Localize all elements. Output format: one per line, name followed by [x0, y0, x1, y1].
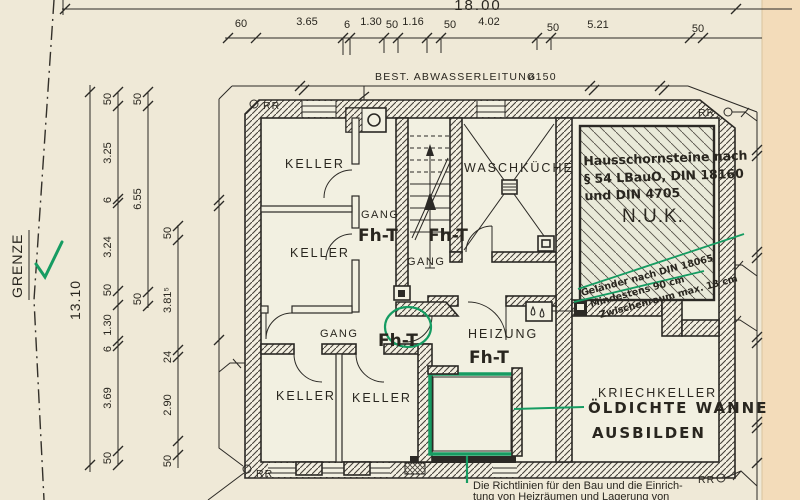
dim-label: 50	[102, 93, 114, 105]
dim-label: 1.30	[360, 16, 381, 28]
dim-label: 50	[692, 23, 704, 35]
dim-label: 5.21	[587, 19, 608, 31]
dim-label: 50	[102, 284, 114, 296]
dim-label: 4.02	[478, 16, 499, 28]
room-label-nuk: N.U.K.	[622, 206, 684, 227]
room-label-gang: GANG	[407, 256, 445, 268]
dim-label: 24	[162, 351, 174, 363]
dim-label: 2.90	[162, 394, 174, 415]
dim-label: 50	[162, 227, 174, 239]
dim-label: 50	[132, 93, 144, 105]
svg-text:AUSBILDEN: AUSBILDEN	[592, 424, 706, 442]
fht-note: Fh-T	[358, 226, 398, 246]
dim-label: 50	[132, 293, 144, 305]
grenze-label: GRENZE	[9, 234, 25, 298]
scan-margin	[762, 0, 800, 500]
room-label-keller: KELLER	[285, 157, 345, 171]
dim-label: 3.24	[102, 236, 114, 257]
floor-drain	[538, 236, 554, 251]
fht-note: Fh-T	[428, 226, 468, 246]
dim-label: 50	[547, 22, 559, 34]
dim-label: 6.55	[132, 188, 144, 209]
rr-label: RR	[698, 107, 715, 119]
pipe-label: BEST. ABWASSERLEITUNG	[375, 71, 536, 83]
dim-label: 1.30	[102, 314, 114, 335]
top-wall-window	[302, 101, 336, 117]
dim-label: 50	[444, 19, 456, 31]
fht-note: Fh-T	[378, 331, 418, 351]
rr-label: RR	[263, 100, 280, 112]
overall-left-dim: 13.10	[67, 280, 83, 320]
rr-label: RR	[256, 468, 273, 480]
pipe-diameter-label: ø150	[528, 71, 557, 83]
room-label-keller: KELLER	[290, 246, 350, 260]
top-wall-window	[477, 101, 505, 117]
room-label-keller: KELLER	[276, 389, 336, 403]
dim-label: 50	[386, 19, 398, 31]
room-label-waschkueche: WASCHKÜCHE	[464, 161, 574, 175]
dim-label: 3.25	[102, 142, 114, 163]
dim-label: 3.81⁵	[162, 287, 174, 313]
blueprint-basement-plan: GRENZE 18.00 60 3.65 6 1.30 50 1.16 50	[0, 0, 800, 500]
dim-label: 6	[102, 197, 114, 203]
overall-top-dim: 18.00	[454, 0, 502, 14]
plan-canvas: GRENZE 18.00 60 3.65 6 1.30 50 1.16 50	[0, 0, 800, 500]
fht-note: Fh-T	[469, 348, 509, 368]
room-label-gang: GANG	[361, 209, 399, 221]
dim-label: 6	[102, 346, 114, 352]
dim-label: 1.16	[402, 16, 423, 28]
dim-label: 3.69	[102, 387, 114, 408]
room-label-keller: KELLER	[352, 391, 412, 405]
room-label-heizung: HEIZUNG	[468, 327, 538, 341]
dim-label: 50	[102, 452, 114, 464]
rr-label: RR	[698, 474, 715, 486]
dim-label: 3.65	[296, 16, 317, 28]
dim-label: 50	[162, 455, 174, 467]
room-label-gang: GANG	[320, 328, 358, 340]
svg-text:ÖLDICHTE WANNE: ÖLDICHTE WANNE	[588, 398, 768, 417]
dim-label: 60	[235, 18, 247, 30]
dim-label: 6	[344, 19, 350, 31]
svg-text:tung von Heizräumen und Lageru: tung von Heizräumen und Lagerung von	[473, 491, 669, 500]
room-label-kriechkeller: KRIECHKELLER	[598, 386, 717, 400]
